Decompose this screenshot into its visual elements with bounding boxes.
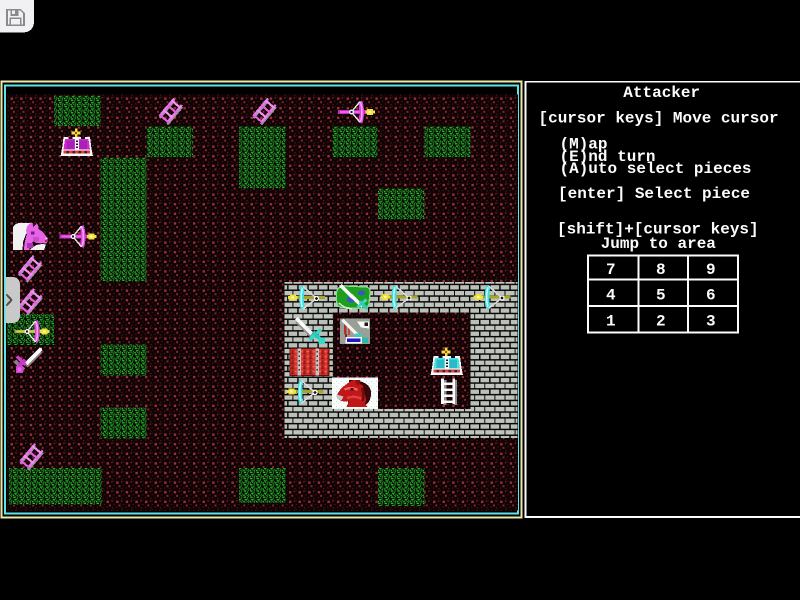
svg-text:(A)uto select pieces: (A)uto select pieces bbox=[560, 160, 752, 178]
svg-text:4: 4 bbox=[606, 287, 616, 305]
svg-text:1: 1 bbox=[606, 313, 616, 331]
svg-text:7: 7 bbox=[606, 261, 616, 279]
svg-text:2: 2 bbox=[656, 313, 666, 331]
svg-text:8: 8 bbox=[656, 261, 666, 279]
svg-text:9: 9 bbox=[706, 261, 716, 279]
svg-text:3: 3 bbox=[706, 313, 716, 331]
svg-text:Jump to area: Jump to area bbox=[601, 235, 717, 253]
svg-text:[enter] Select piece: [enter] Select piece bbox=[558, 185, 750, 203]
svg-text:5: 5 bbox=[656, 287, 666, 305]
svg-text:Attacker: Attacker bbox=[623, 84, 700, 102]
svg-text:[cursor keys] Move cursor: [cursor keys] Move cursor bbox=[539, 109, 779, 127]
svg-text:6: 6 bbox=[706, 287, 716, 305]
